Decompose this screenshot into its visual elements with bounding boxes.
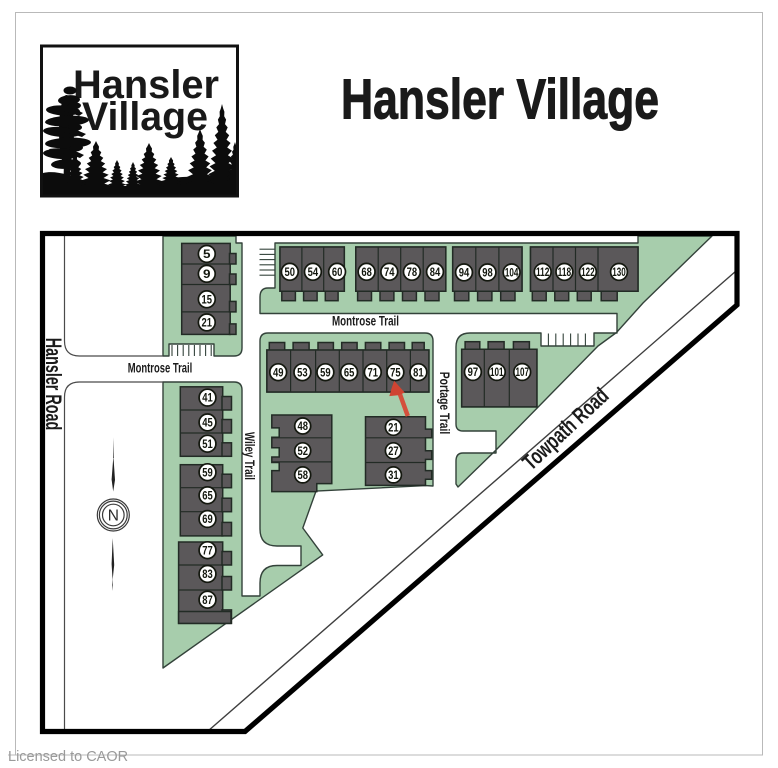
svg-text:112: 112 <box>536 267 550 279</box>
svg-text:94: 94 <box>459 268 470 280</box>
svg-text:65: 65 <box>202 490 213 502</box>
svg-text:98: 98 <box>482 268 493 280</box>
svg-text:87: 87 <box>202 595 213 607</box>
svg-text:9: 9 <box>203 269 211 281</box>
svg-text:Licensed to CAOR: Licensed to CAOR <box>8 749 128 765</box>
svg-text:Village: Village <box>82 95 208 139</box>
svg-text:Wiley Trail: Wiley Trail <box>242 432 257 480</box>
svg-text:65: 65 <box>344 367 355 379</box>
svg-text:107: 107 <box>515 367 529 379</box>
svg-text:97: 97 <box>468 367 479 379</box>
svg-text:69: 69 <box>202 514 213 526</box>
svg-text:52: 52 <box>297 446 308 458</box>
svg-text:71: 71 <box>368 367 379 379</box>
svg-text:51: 51 <box>202 439 213 451</box>
svg-text:118: 118 <box>558 267 572 279</box>
svg-text:104: 104 <box>505 268 519 280</box>
svg-text:74: 74 <box>384 267 395 279</box>
svg-text:83: 83 <box>202 569 213 581</box>
svg-text:68: 68 <box>361 267 372 279</box>
svg-text:75: 75 <box>390 367 401 379</box>
svg-text:48: 48 <box>297 421 308 433</box>
svg-text:49: 49 <box>273 367 284 379</box>
svg-text:45: 45 <box>202 418 213 430</box>
svg-text:Portage Trail: Portage Trail <box>437 372 452 435</box>
svg-text:53: 53 <box>297 367 308 379</box>
svg-text:21: 21 <box>202 318 213 330</box>
svg-text:81: 81 <box>413 367 424 379</box>
svg-text:122: 122 <box>581 267 595 279</box>
svg-text:N: N <box>108 508 119 525</box>
svg-text:58: 58 <box>297 470 308 482</box>
svg-text:59: 59 <box>202 467 213 479</box>
svg-text:5: 5 <box>203 249 211 261</box>
svg-text:60: 60 <box>332 267 343 279</box>
svg-text:Hansler Road: Hansler Road <box>41 338 66 431</box>
svg-text:Hansler Village: Hansler Village <box>341 68 659 132</box>
svg-text:54: 54 <box>308 267 319 279</box>
svg-text:31: 31 <box>388 470 399 482</box>
svg-text:101: 101 <box>490 367 504 379</box>
svg-text:27: 27 <box>388 446 399 458</box>
svg-text:50: 50 <box>285 267 296 279</box>
svg-text:59: 59 <box>320 367 331 379</box>
svg-text:21: 21 <box>388 422 399 434</box>
svg-text:41: 41 <box>202 393 213 405</box>
svg-text:84: 84 <box>430 267 441 279</box>
svg-text:77: 77 <box>202 545 213 557</box>
svg-text:130: 130 <box>612 267 626 279</box>
svg-text:Montrose Trail: Montrose Trail <box>128 361 193 376</box>
svg-text:Montrose Trail: Montrose Trail <box>332 314 399 329</box>
svg-text:78: 78 <box>407 267 418 279</box>
svg-text:15: 15 <box>202 294 213 306</box>
